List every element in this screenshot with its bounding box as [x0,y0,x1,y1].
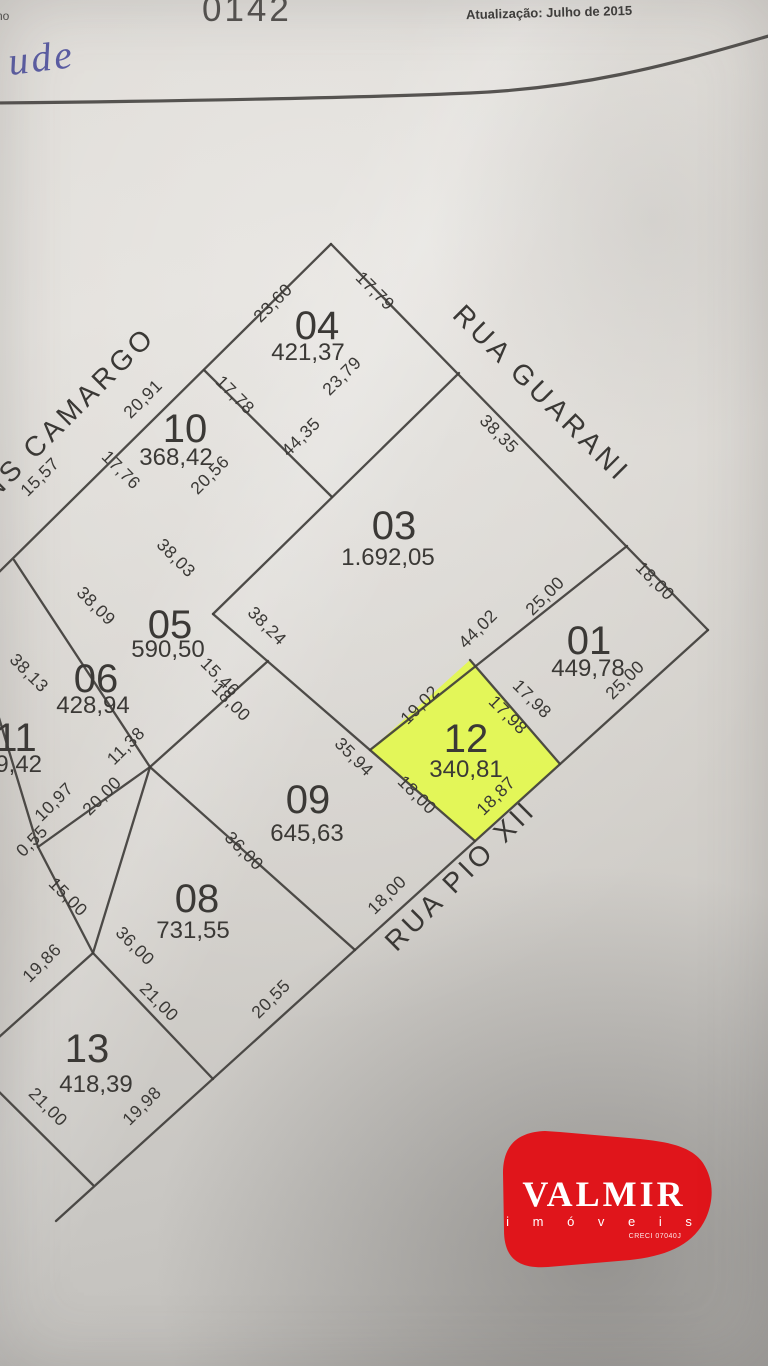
dimension-label: 44,35 [277,413,324,460]
dimension-label: 15,00 [45,873,92,920]
lot-13-area: 418,39 [59,1071,132,1098]
dimension-label: 10,97 [30,778,77,825]
dimension-label: 38,09 [73,582,120,629]
lot-12-area: 340,81 [429,756,502,783]
dimension-label: 17,76 [98,446,145,493]
lot-13-number: 13 [65,1027,110,1071]
lot-08-number: 08 [175,877,220,921]
lot-10-area: 368,42 [139,444,212,471]
valmir-logo: VALMIR i m ó v e i s CRECI 07040J [503,1131,712,1267]
lot-04-area: 421,37 [271,339,344,366]
lot-09-area: 645,63 [270,820,343,847]
dimension-label: 17,78 [212,371,259,418]
lot-03-area: 1.692,05 [341,544,434,571]
dimension-label: 38,13 [6,649,53,696]
photographed-plat-document: no 0142 Atualização: Julho de 2015 ude [0,0,768,1366]
lot-06-area: 428,94 [56,692,129,719]
logo-license-text: CRECI 07040J [629,1233,682,1240]
dimension-label: 18,00 [632,557,679,604]
dimension-label: 21,00 [136,978,183,1025]
dimension-label: 19,86 [18,939,65,986]
plat-map: RUA GUARANI RUA PIO XII NS CAMARGO 04 42… [0,0,768,1366]
lot-05-area: 590,50 [131,636,204,663]
dimension-label: 38,03 [153,534,200,581]
dimension-label: 20,00 [78,772,125,819]
dimension-label: 0,55 [12,821,52,861]
lot-12-number: 12 [444,717,489,761]
logo-name-text: VALMIR [522,1174,685,1214]
lot-11-area: 09,42 [0,751,42,778]
street-line-rua-pio-xii [56,630,708,1221]
boundary-08-13 [93,953,213,1079]
dimension-label: 44,02 [454,605,501,652]
dimension-label: 20,55 [247,975,294,1022]
lot-09-number: 09 [286,778,331,822]
dimension-label: 38,24 [244,602,291,649]
logo-tagline-text: i m ó v e i s [506,1214,702,1229]
lot-03-number: 03 [372,504,417,548]
dimension-label: 35,94 [331,733,378,780]
lot-08-area: 731,55 [156,917,229,944]
page-fold-line [0,35,768,103]
dimension-label: 36,00 [112,922,159,969]
